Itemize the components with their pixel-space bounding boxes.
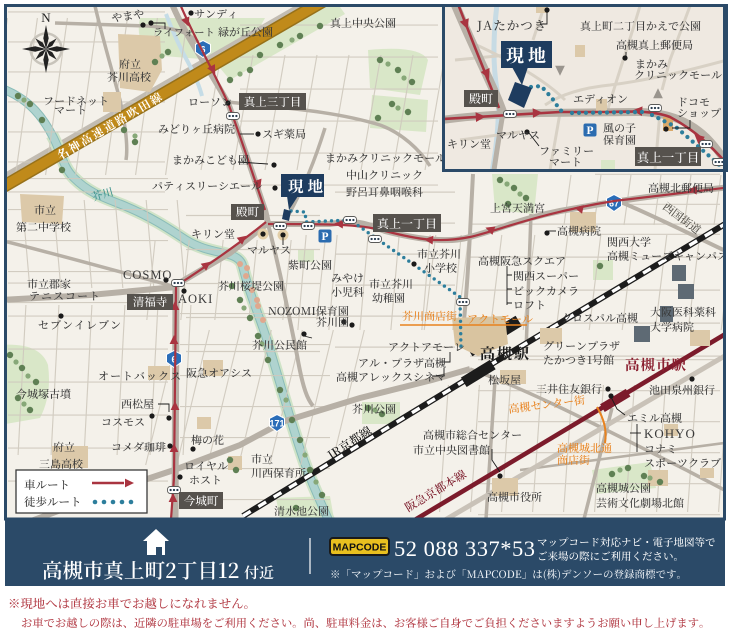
svg-text:171: 171 (269, 419, 284, 429)
svg-text:52 088 337*53: 52 088 337*53 (394, 536, 536, 561)
svg-text:AOKI: AOKI (178, 292, 213, 306)
svg-text:COSMO: COSMO (123, 268, 172, 282)
svg-text:P: P (586, 125, 593, 137)
svg-text:N: N (41, 10, 51, 25)
svg-text:MAPCODE: MAPCODE (333, 542, 387, 554)
svg-text:P: P (321, 231, 328, 243)
svg-text:KOHYO: KOHYO (644, 426, 696, 441)
